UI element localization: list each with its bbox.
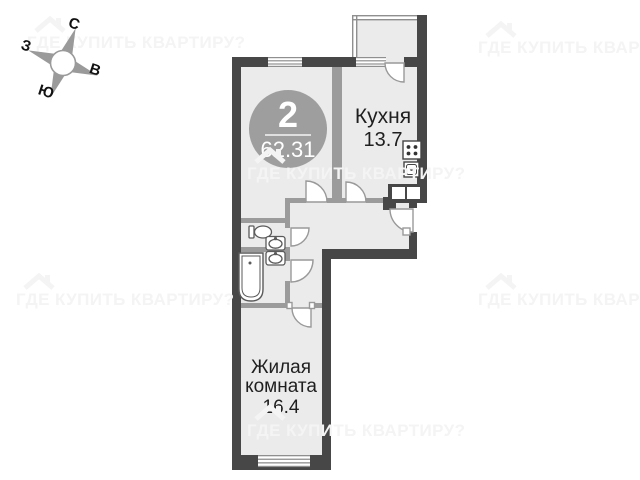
watermark-text: ГДЕ КУПИТЬ КВАРТИРУ?: [16, 290, 234, 310]
watermark: ГДЕ КУПИТЬ КВАРТИРУ?: [478, 272, 640, 310]
room-count: 2: [278, 98, 298, 132]
window-living-bottom-icon: [258, 455, 310, 467]
sink-icon-2: [266, 252, 285, 266]
bathtub-icon: [239, 253, 263, 301]
compass-hub: [51, 51, 76, 76]
house-roof-icon: [484, 272, 518, 290]
door-jamb: [310, 303, 315, 309]
window-room-top-icon: [268, 57, 302, 67]
badge-divider: [265, 134, 311, 136]
door-jamb: [287, 303, 292, 309]
house-roof-icon: [253, 146, 287, 164]
watermark-text: ГДЕ КУПИТЬ КВАРТИРУ?: [247, 164, 465, 184]
floor-plan-page: С З В Ю 2 62.31 Кухня 13.7 Жилая комната…: [0, 0, 640, 480]
house-roof-icon: [22, 272, 56, 290]
watermark: ГДЕ КУПИТЬ КВАРТИРУ?: [247, 146, 465, 184]
watermark: ГДЕ КУПИТЬ КВАРТИРУ?: [247, 403, 465, 441]
watermark-text: ГДЕ КУПИТЬ КВАРТИРУ?: [478, 38, 640, 58]
watermark-text: ГДЕ КУПИТЬ КВАРТИРУ?: [247, 421, 465, 441]
house-roof-icon: [484, 20, 518, 38]
watermark: ГДЕ КУПИТЬ КВАРТИРУ?: [16, 272, 234, 310]
window-balcony-sill-icon: [356, 57, 386, 67]
door-stop: [403, 228, 410, 235]
house-roof-icon: [253, 403, 287, 421]
sink-icon: [266, 237, 285, 251]
watermark: ГДЕ КУПИТЬ КВАРТИРУ?: [478, 20, 640, 58]
living-room-label: Жилая комната: [231, 358, 331, 396]
kitchen-label: Кухня: [333, 105, 433, 129]
compass-rose: [8, 8, 118, 116]
watermark-text: ГДЕ КУПИТЬ КВАРТИРУ?: [478, 290, 640, 310]
